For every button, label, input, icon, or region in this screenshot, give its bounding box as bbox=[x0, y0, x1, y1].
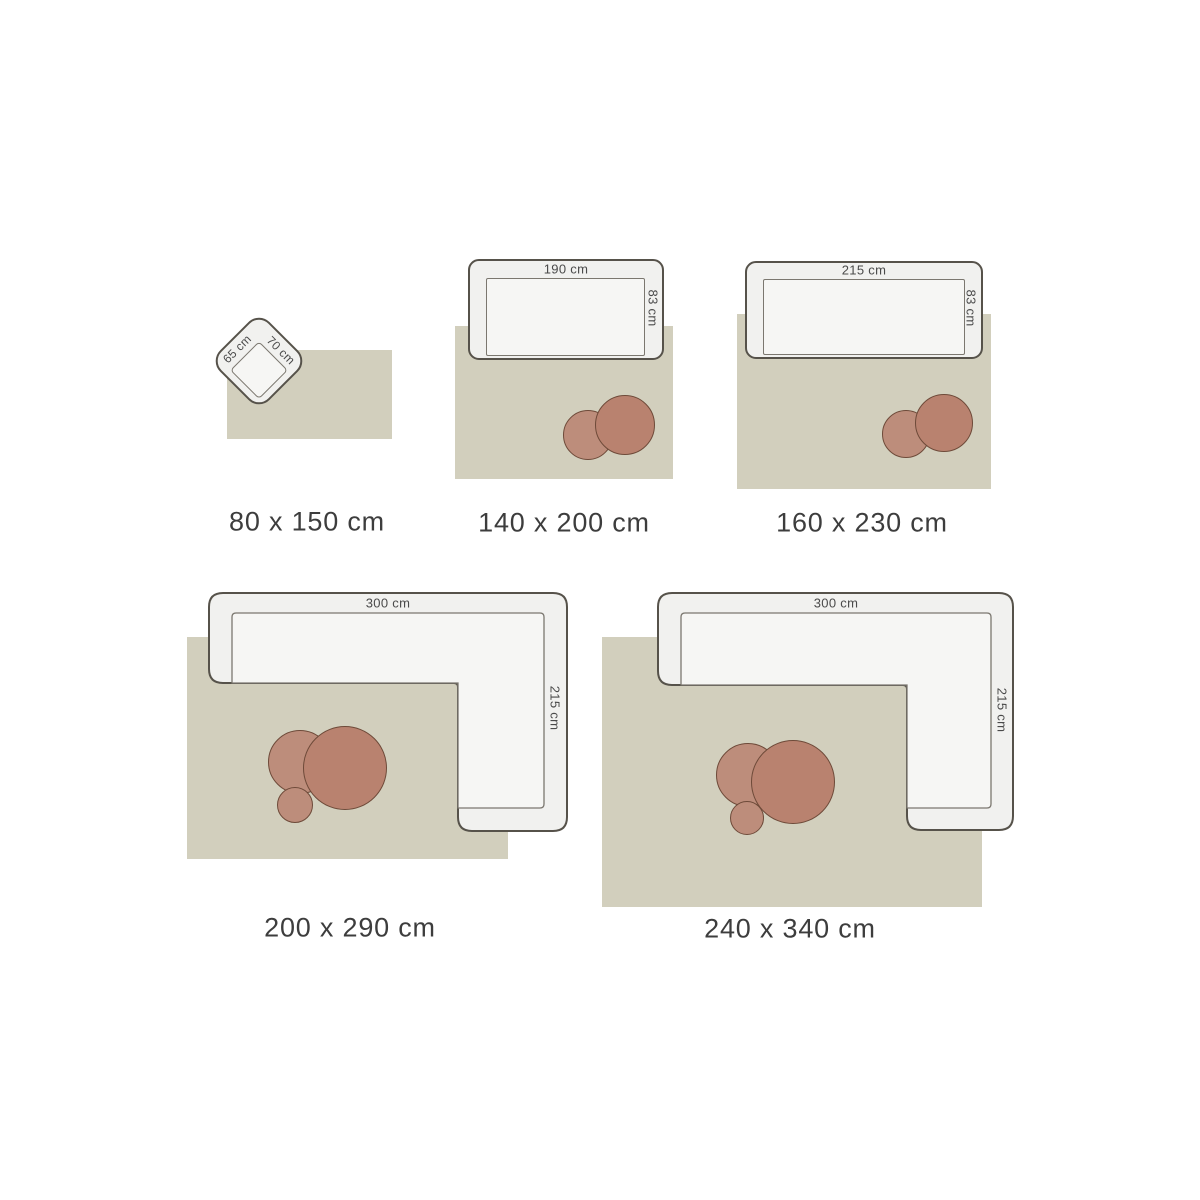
corner-sofa-depth-label: 215 cm bbox=[995, 688, 1010, 732]
size-label-240x340: 240 x 340 cm bbox=[704, 914, 876, 945]
corner-sofa-outline bbox=[658, 593, 1015, 832]
diagram-240x340: 300 cm 215 cm 240 x 340 cm bbox=[0, 0, 1200, 1200]
rug-size-guide: 65 cm 70 cm 80 x 150 cm 190 cm 83 cm 140… bbox=[0, 0, 1200, 1200]
corner-sofa-width-label: 300 cm bbox=[814, 596, 858, 611]
coffee-table-large bbox=[751, 740, 835, 824]
